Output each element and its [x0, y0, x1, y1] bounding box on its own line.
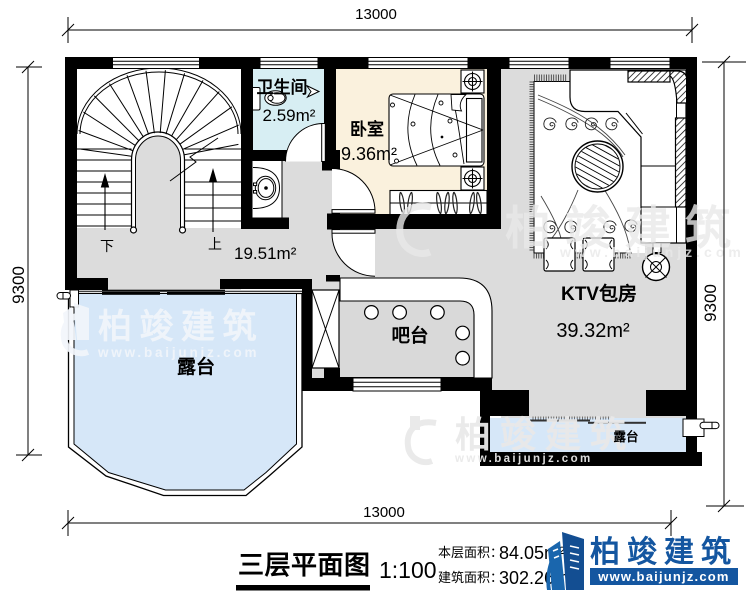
svg-text:19.51m²: 19.51m² [234, 244, 297, 263]
svg-text:9300: 9300 [9, 266, 28, 304]
svg-text:露台: 露台 [177, 355, 215, 378]
svg-text:2.59m²: 2.59m² [263, 106, 316, 125]
svg-text:吧台: 吧台 [391, 325, 428, 346]
svg-text:9.36m²: 9.36m² [341, 144, 397, 164]
svg-text:www.baijunjz.com: www.baijunjz.com [559, 244, 745, 260]
svg-text:9300: 9300 [701, 284, 720, 322]
svg-text:上: 上 [208, 236, 222, 252]
svg-text:www.baijunjz.com: www.baijunjz.com [454, 453, 593, 465]
svg-text:三层平面图: 三层平面图 [238, 550, 371, 580]
svg-text:柏竣建筑: 柏竣建筑 [455, 414, 635, 455]
svg-text:卧室: 卧室 [350, 119, 384, 139]
svg-text:1:100: 1:100 [379, 557, 437, 583]
svg-text:建筑面积：: 建筑面积： [438, 570, 503, 585]
svg-text:柏竣建筑: 柏竣建筑 [98, 307, 264, 346]
svg-text:www.baijunjz.com: www.baijunjz.com [597, 569, 729, 584]
svg-text:13000: 13000 [355, 6, 397, 23]
svg-text:39.32m²: 39.32m² [556, 320, 630, 342]
svg-text:卫生间: 卫生间 [257, 77, 308, 97]
svg-text:下: 下 [100, 238, 114, 254]
svg-text:柏竣建筑: 柏竣建筑 [590, 535, 738, 569]
svg-text:13000: 13000 [363, 504, 405, 521]
svg-text:露台: 露台 [613, 429, 638, 444]
svg-text:本层面积：: 本层面积： [438, 545, 503, 560]
svg-text:KTV包房: KTV包房 [561, 282, 637, 305]
